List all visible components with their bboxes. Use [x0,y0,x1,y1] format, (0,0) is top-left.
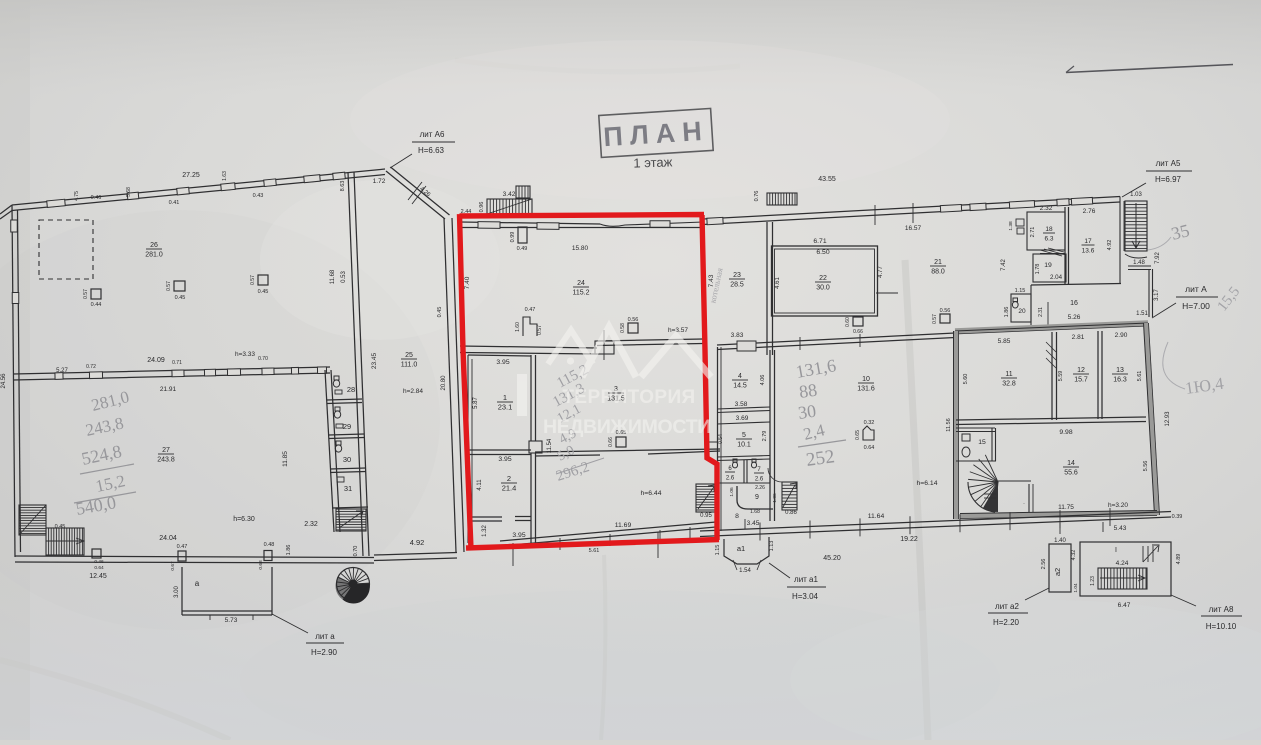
svg-text:2.6: 2.6 [755,477,764,483]
svg-text:7.42: 7.42 [1001,259,1007,271]
svg-text:3.69: 3.69 [736,415,749,422]
svg-text:1.86: 1.86 [286,545,292,556]
svg-text:5.59: 5.59 [1058,371,1064,382]
svg-text:0.96: 0.96 [479,202,485,213]
svg-text:0.66: 0.66 [608,437,614,447]
svg-text:18: 18 [1045,226,1053,233]
svg-text:1.60: 1.60 [515,322,521,332]
svg-text:12.93: 12.93 [1165,411,1171,427]
svg-text:НЕДВИЖИМОСТИ: НЕДВИЖИМОСТИ [543,416,711,438]
svg-text:16.57: 16.57 [905,225,922,232]
svg-text:55.6: 55.6 [1064,470,1078,477]
svg-text:21: 21 [934,259,942,266]
svg-text:лит а1: лит а1 [794,575,818,584]
svg-text:0.76: 0.76 [754,191,760,202]
svg-text:1.04: 1.04 [1073,583,1079,593]
svg-text:4.92: 4.92 [410,538,425,547]
svg-text:28: 28 [347,385,355,394]
svg-text:0.54: 0.54 [718,434,724,444]
svg-text:1.32: 1.32 [482,525,488,537]
svg-text:2.6: 2.6 [726,476,735,482]
svg-text:h=3.33: h=3.33 [235,351,255,358]
svg-text:0.48: 0.48 [264,542,275,548]
svg-text:1.06: 1.06 [729,487,735,497]
svg-text:16.3: 16.3 [1113,377,1127,384]
svg-text:лит А: лит А [1185,284,1207,294]
svg-text:2.31: 2.31 [1038,307,1044,317]
svg-text:1.40: 1.40 [1054,538,1066,544]
svg-text:0.45: 0.45 [55,524,66,530]
svg-text:30: 30 [797,401,818,423]
svg-text:1.15: 1.15 [1015,288,1026,294]
svg-text:Н=6.97: Н=6.97 [1155,175,1182,184]
svg-text:252: 252 [805,446,836,471]
svg-text:1.48: 1.48 [1133,260,1145,266]
svg-text:Н=2.90: Н=2.90 [311,648,338,657]
svg-text:0.64: 0.64 [94,565,104,571]
svg-text:115.2: 115.2 [573,290,590,297]
svg-text:4.11: 4.11 [477,479,483,491]
svg-text:h=3.57: h=3.57 [668,327,688,334]
svg-text:19.22: 19.22 [900,536,918,543]
svg-text:0.57: 0.57 [83,289,89,299]
svg-text:0.65: 0.65 [855,430,861,440]
svg-text:0.86: 0.86 [785,510,797,516]
svg-text:5.26: 5.26 [1068,314,1081,321]
svg-text:2: 2 [507,474,511,483]
svg-text:1.78: 1.78 [1035,264,1041,275]
svg-text:h=6.14: h=6.14 [917,480,938,487]
svg-text:4.75: 4.75 [74,191,80,201]
svg-text:а1: а1 [737,544,745,553]
svg-text:0.57: 0.57 [166,281,172,291]
svg-text:1.54: 1.54 [739,568,751,574]
svg-text:Н=3.04: Н=3.04 [792,592,819,601]
svg-text:23: 23 [733,272,741,279]
svg-text:2.90: 2.90 [1115,332,1128,339]
svg-text:32.8: 32.8 [1002,381,1016,388]
svg-text:6.47: 6.47 [1118,602,1131,609]
svg-text:24.04: 24.04 [159,535,177,542]
svg-text:1.68: 1.68 [750,509,760,515]
svg-text:3.42: 3.42 [503,191,516,198]
svg-text:88.0: 88.0 [931,269,945,276]
svg-text:2.32: 2.32 [1040,205,1053,212]
svg-text:2.76: 2.76 [1083,208,1096,215]
svg-text:30: 30 [343,455,351,464]
svg-text:0.45: 0.45 [437,307,443,318]
svg-text:4.77: 4.77 [878,266,884,278]
svg-text:4.06: 4.06 [760,375,766,386]
svg-text:24.56: 24.56 [1,373,7,389]
svg-text:0.45: 0.45 [175,295,186,301]
svg-text:4: 4 [738,373,742,380]
svg-text:5.85: 5.85 [998,338,1011,345]
svg-text:30.0: 30.0 [816,285,830,292]
svg-text:1: 1 [503,393,507,402]
svg-text:43.55: 43.55 [818,176,836,183]
svg-text:0.72: 0.72 [86,364,96,370]
svg-text:1 этаж: 1 этаж [633,154,673,170]
svg-text:0.49: 0.49 [517,246,528,252]
svg-text:0.46: 0.46 [91,195,102,201]
svg-text:а: а [195,579,200,588]
svg-text:14: 14 [1067,460,1075,467]
svg-text:лит А5: лит А5 [1156,159,1181,168]
svg-text:0.46: 0.46 [94,559,104,565]
svg-text:6.3: 6.3 [1044,236,1053,243]
svg-text:9: 9 [755,494,759,501]
svg-text:24.09: 24.09 [147,357,165,364]
svg-text:0.70: 0.70 [258,356,268,362]
svg-text:0.60: 0.60 [845,317,851,327]
svg-text:1.03: 1.03 [1130,192,1142,198]
svg-text:29: 29 [343,422,351,431]
svg-text:11.75: 11.75 [1058,504,1074,511]
svg-text:лит А6: лит А6 [420,130,445,139]
svg-text:0.66: 0.66 [853,329,863,335]
svg-text:0.67: 0.67 [170,561,176,571]
svg-text:h=6.30: h=6.30 [233,516,255,523]
svg-text:5.27: 5.27 [56,368,68,374]
svg-text:h=3.20: h=3.20 [1108,502,1128,509]
svg-text:0.70: 0.70 [353,546,359,557]
svg-text:1.51: 1.51 [1136,311,1148,317]
svg-text:5.56: 5.56 [1143,461,1149,472]
svg-text:4.92: 4.92 [1107,240,1113,251]
svg-text:20.80: 20.80 [441,375,447,391]
svg-text:5: 5 [742,432,746,439]
svg-text:1.72: 1.72 [373,178,386,185]
svg-text:лит а: лит а [315,632,335,641]
svg-text:5.61: 5.61 [589,548,600,554]
svg-text:19: 19 [1044,262,1052,269]
svg-text:3.83: 3.83 [731,332,744,339]
svg-text:Н=7.00: Н=7.00 [1182,301,1210,311]
svg-text:12: 12 [1077,367,1085,374]
svg-text:0.64: 0.64 [864,445,875,451]
svg-text:2.81: 2.81 [1072,334,1085,341]
svg-text:15.7: 15.7 [1074,377,1088,384]
svg-text:11.56: 11.56 [946,418,952,431]
svg-text:1.13: 1.13 [769,541,775,552]
svg-text:4.89: 4.89 [1176,554,1182,565]
svg-text:15.80: 15.80 [572,245,589,252]
svg-text:1.38: 1.38 [1008,221,1014,231]
svg-text:0.57: 0.57 [932,314,938,324]
svg-text:15: 15 [978,439,986,446]
svg-text:h=2.84: h=2.84 [403,388,423,395]
svg-text:11.85: 11.85 [282,451,289,467]
svg-text:26: 26 [150,242,158,249]
svg-text:2.04: 2.04 [1050,274,1063,281]
svg-text:131.6: 131.6 [857,386,875,393]
svg-text:1.15: 1.15 [715,545,721,556]
svg-text:h=6.44: h=6.44 [641,490,662,497]
svg-text:24: 24 [577,280,585,287]
svg-text:2.79: 2.79 [762,431,768,442]
svg-text:23.1: 23.1 [498,403,513,412]
svg-text:28.5: 28.5 [730,282,744,289]
svg-text:10.1: 10.1 [737,442,751,449]
svg-text:7.40: 7.40 [464,276,471,289]
svg-text:0.57: 0.57 [537,325,543,335]
svg-text:111.0: 111.0 [401,362,418,369]
svg-text:0.68: 0.68 [258,560,264,570]
svg-text:3.95: 3.95 [512,532,525,539]
svg-text:0.47: 0.47 [177,544,188,550]
svg-text:13.6: 13.6 [1082,248,1095,255]
svg-text:1.86: 1.86 [1004,307,1010,318]
svg-text:11.64: 11.64 [868,513,885,520]
svg-text:0.56: 0.56 [628,317,639,323]
svg-text:0.58: 0.58 [620,323,626,333]
svg-text:0.44: 0.44 [91,302,102,308]
svg-text:0.47: 0.47 [525,307,536,313]
svg-text:45.20: 45.20 [823,555,841,562]
svg-text:5.60: 5.60 [963,374,969,385]
svg-text:243.8: 243.8 [157,457,175,464]
svg-text:3.58: 3.58 [735,401,748,408]
svg-text:·: · [1023,501,1025,507]
svg-text:281.0: 281.0 [145,252,163,259]
svg-text:0.71: 0.71 [172,360,182,366]
svg-text:14.5: 14.5 [733,383,747,390]
svg-text:9.98: 9.98 [1059,429,1072,436]
svg-text:5.87: 5.87 [473,397,479,409]
svg-text:лит а2: лит а2 [995,602,1019,611]
svg-text:21.4: 21.4 [502,484,517,493]
svg-text:4.32: 4.32 [1071,550,1077,561]
svg-text:16: 16 [1070,300,1078,307]
svg-text:Н=2.20: Н=2.20 [993,618,1020,627]
svg-text:3.95: 3.95 [496,359,509,366]
svg-text:Н=10.10: Н=10.10 [1206,622,1237,631]
svg-text:лит А8: лит А8 [1209,605,1234,614]
svg-text:6.71: 6.71 [813,238,826,245]
svg-text:0.39: 0.39 [1172,514,1183,520]
svg-text:31: 31 [344,484,352,493]
svg-text:1.23: 1.23 [1090,576,1096,586]
svg-text:1.63: 1.63 [222,171,228,181]
svg-text:ТЕРРИТОРИЯ: ТЕРРИТОРИЯ [562,387,695,408]
svg-text:13: 13 [1116,367,1124,374]
svg-text:3.45: 3.45 [747,520,760,527]
svg-text:11: 11 [1005,371,1012,378]
svg-text:5.61: 5.61 [1137,371,1143,382]
svg-text:21.91: 21.91 [160,386,177,393]
svg-text:4.61: 4.61 [775,277,781,289]
svg-text:11.54: 11.54 [547,438,553,453]
svg-text:0.32: 0.32 [864,420,875,426]
svg-text:27: 27 [162,447,170,454]
svg-text:5.68: 5.68 [126,187,132,197]
svg-text:10: 10 [862,376,870,383]
svg-text:11.68: 11.68 [330,269,336,284]
svg-text:Н=6.63: Н=6.63 [418,146,445,155]
svg-text:0.45: 0.45 [258,289,269,295]
svg-text:0.53: 0.53 [341,271,347,283]
svg-text:2.71: 2.71 [1030,227,1036,238]
svg-text:22: 22 [819,275,827,282]
svg-text:27.25: 27.25 [182,172,200,179]
svg-text:0.99: 0.99 [510,232,516,243]
svg-text:3.00: 3.00 [174,586,180,598]
svg-text:0.57: 0.57 [250,275,256,285]
svg-text:0.43: 0.43 [253,193,264,199]
svg-text:5.73: 5.73 [225,617,238,624]
svg-text:0.56: 0.56 [940,308,951,314]
svg-text:0.41: 0.41 [169,200,180,206]
svg-text:23.45: 23.45 [371,352,378,369]
svg-text:2.32: 2.32 [304,521,318,528]
svg-text:3.95: 3.95 [498,456,511,463]
svg-text:2.56: 2.56 [1041,559,1047,570]
svg-text:4.24: 4.24 [1116,560,1129,567]
svg-text:а2: а2 [1053,568,1062,576]
svg-text:0.95: 0.95 [700,513,712,519]
svg-text:8: 8 [735,513,739,520]
svg-text:6.50: 6.50 [816,249,829,256]
svg-text:7.92: 7.92 [1155,252,1161,264]
svg-text:3.17: 3.17 [1154,289,1160,301]
svg-text:11.69: 11.69 [615,522,632,529]
svg-text:25: 25 [405,352,413,359]
svg-text:12.45: 12.45 [89,573,107,580]
svg-text:88: 88 [798,380,819,402]
svg-text:8.63: 8.63 [340,181,346,192]
svg-text:I: I [1115,547,1117,554]
svg-text:20: 20 [1018,308,1026,315]
svg-text:17: 17 [1084,238,1092,245]
svg-text:2.26: 2.26 [755,485,765,491]
svg-text:5.43: 5.43 [1114,525,1127,532]
